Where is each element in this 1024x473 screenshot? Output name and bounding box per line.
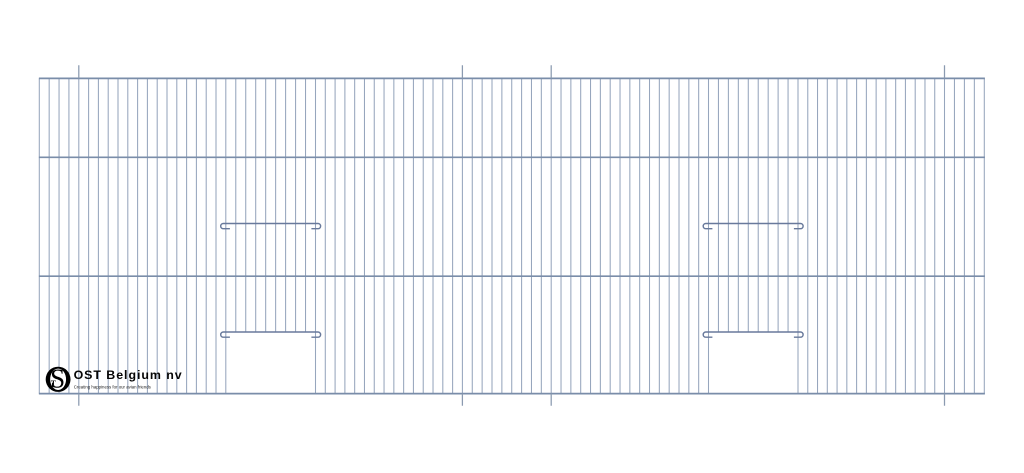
svg-text:OST Belgium nv: OST Belgium nv (74, 368, 183, 382)
svg-text:Creating happiness for our avi: Creating happiness for our avian friends (74, 384, 152, 389)
svg-text:T: T (51, 378, 56, 387)
